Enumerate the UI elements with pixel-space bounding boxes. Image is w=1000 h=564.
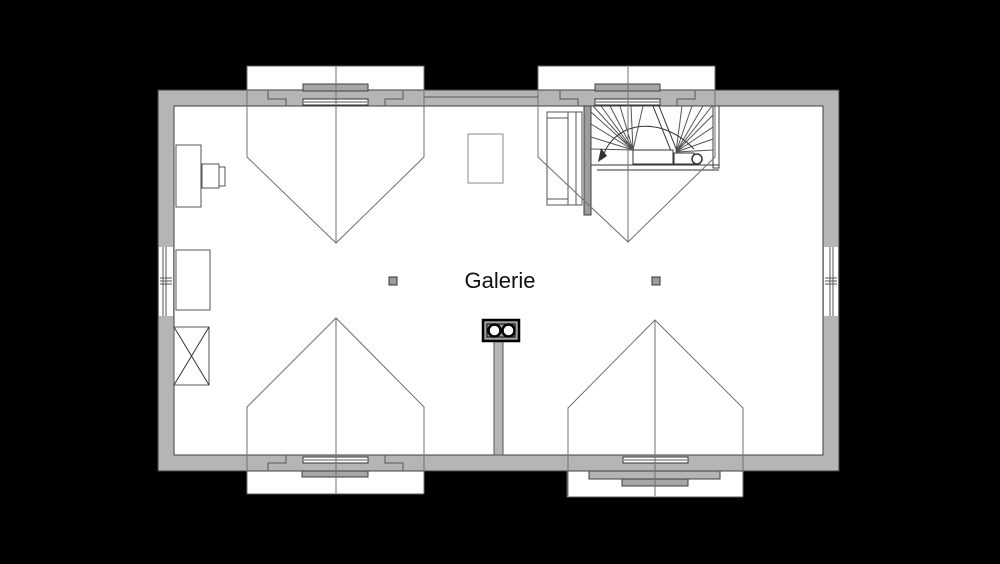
desk xyxy=(176,145,201,207)
chair-back xyxy=(219,167,225,186)
dormer-sill xyxy=(302,471,368,477)
stair-newel-post xyxy=(692,154,702,164)
room-label: Galerie xyxy=(465,268,536,293)
floor-plan: Galerie xyxy=(0,0,1000,564)
post-left xyxy=(389,277,397,285)
chimney-flue-left xyxy=(489,325,501,337)
sideboard xyxy=(176,250,210,310)
chimney-flue-right xyxy=(503,325,515,337)
chimney-duct xyxy=(494,341,503,455)
stair-wall xyxy=(584,106,591,215)
stair-first-tread xyxy=(674,153,694,164)
floor-plan-canvas: Galerie xyxy=(0,0,1000,564)
chair-seat xyxy=(202,164,219,188)
stair-landing xyxy=(633,150,673,164)
skylight xyxy=(468,134,503,183)
shelf xyxy=(547,112,582,205)
post-right xyxy=(652,277,660,285)
